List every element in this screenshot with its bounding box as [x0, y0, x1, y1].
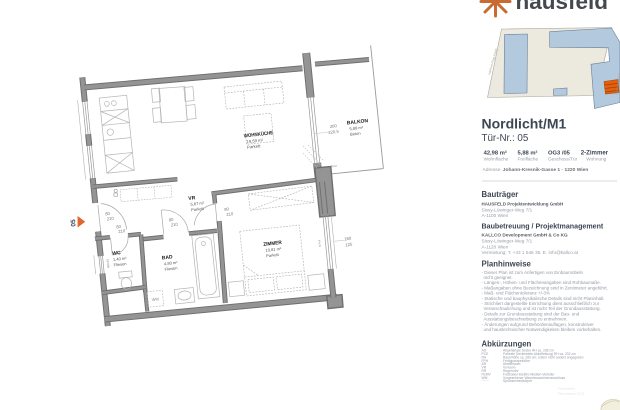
svg-text:B.Peil: B.Peil — [317, 239, 322, 247]
svg-text:210: 210 — [226, 211, 234, 217]
svg-text:210: 210 — [106, 215, 114, 221]
svg-text:Planhinweise: Planhinweise — [482, 259, 532, 268]
svg-text:- Änderungen aufgrund Behörden: - Änderungen aufgrund Behördenauflagen, … — [482, 321, 595, 327]
svg-text:210: 210 — [170, 221, 178, 227]
svg-text:210: 210 — [118, 228, 126, 234]
svg-text:Abkürzungen: Abkürzungen — [482, 340, 532, 349]
svg-text:Baubetreuung / Projektmanageme: Baubetreuung / Projektmanagement — [482, 222, 604, 230]
svg-text:Wohnung: Wohnung — [586, 157, 606, 162]
svg-text:A-1100 Wien: A-1100 Wien — [482, 213, 509, 218]
svg-text:Tür-Nr.: 05: Tür-Nr.: 05 — [482, 133, 529, 144]
svg-text:Nordlicht/M1: Nordlicht/M1 — [482, 116, 567, 132]
svg-text:160: 160 — [344, 235, 352, 241]
svg-text:Geschoss/Tür: Geschoss/Tür — [548, 157, 578, 162]
svg-text:5,88 m²: 5,88 m² — [518, 149, 538, 156]
svg-text:Vermietung: T. +43 1 546 35. E: Vermietung: T. +43 1 546 35. E. info@kal… — [482, 250, 579, 255]
svg-text:Planungsanp. 03.21: Planungsanp. 03.21 — [558, 392, 585, 396]
svg-text:Wohnfläche: Wohnfläche — [484, 157, 509, 162]
svg-text:Adresse: Adresse — [483, 167, 501, 173]
svg-text:hausfeld: hausfeld — [516, 0, 609, 14]
svg-text:Rost: Rost — [331, 164, 338, 169]
svg-text:A-1120 Wien: A-1120 Wien — [482, 244, 509, 249]
svg-text:Freifläche: Freifläche — [518, 157, 539, 162]
svg-text:KALLCO Development GmbH & Co K: KALLCO Development GmbH & Co KG — [482, 233, 569, 238]
svg-text:OG3 /05: OG3 /05 — [548, 150, 571, 156]
svg-text:Johann-Kresnik-Gasse 1 · 1220: Johann-Kresnik-Gasse 1 · 1220 Wien — [503, 167, 589, 173]
svg-text:42,98 m²: 42,98 m² — [484, 149, 507, 156]
svg-text:WM: WM — [151, 296, 159, 302]
svg-text:2-Zimmer: 2-Zimmer — [581, 149, 609, 156]
svg-text:Bauträger: Bauträger — [482, 190, 519, 199]
svg-text:Sissy-Löwinger-Weg 7/1: Sissy-Löwinger-Weg 7/1 — [482, 239, 533, 244]
svg-text:05: 05 — [70, 219, 77, 227]
svg-text:125: 125 — [345, 241, 353, 247]
svg-text:·······: ······· — [482, 379, 490, 383]
svg-text:und haustechnischer Notwendigk: und haustechnischer Notwendigkeiten blei… — [484, 327, 602, 332]
svg-text:Sprossenheizkörper: Sprossenheizkörper — [503, 379, 533, 383]
svg-text:Vorbehaltlich: Vorbehaltlich — [558, 387, 576, 391]
svg-text:HAUSFELD Projektentwicklung Gm: HAUSFELD Projektentwicklung GmbH — [482, 202, 564, 207]
svg-text:Sissy-Löwinger-Weg 7/1: Sissy-Löwinger-Weg 7/1 — [482, 207, 533, 212]
